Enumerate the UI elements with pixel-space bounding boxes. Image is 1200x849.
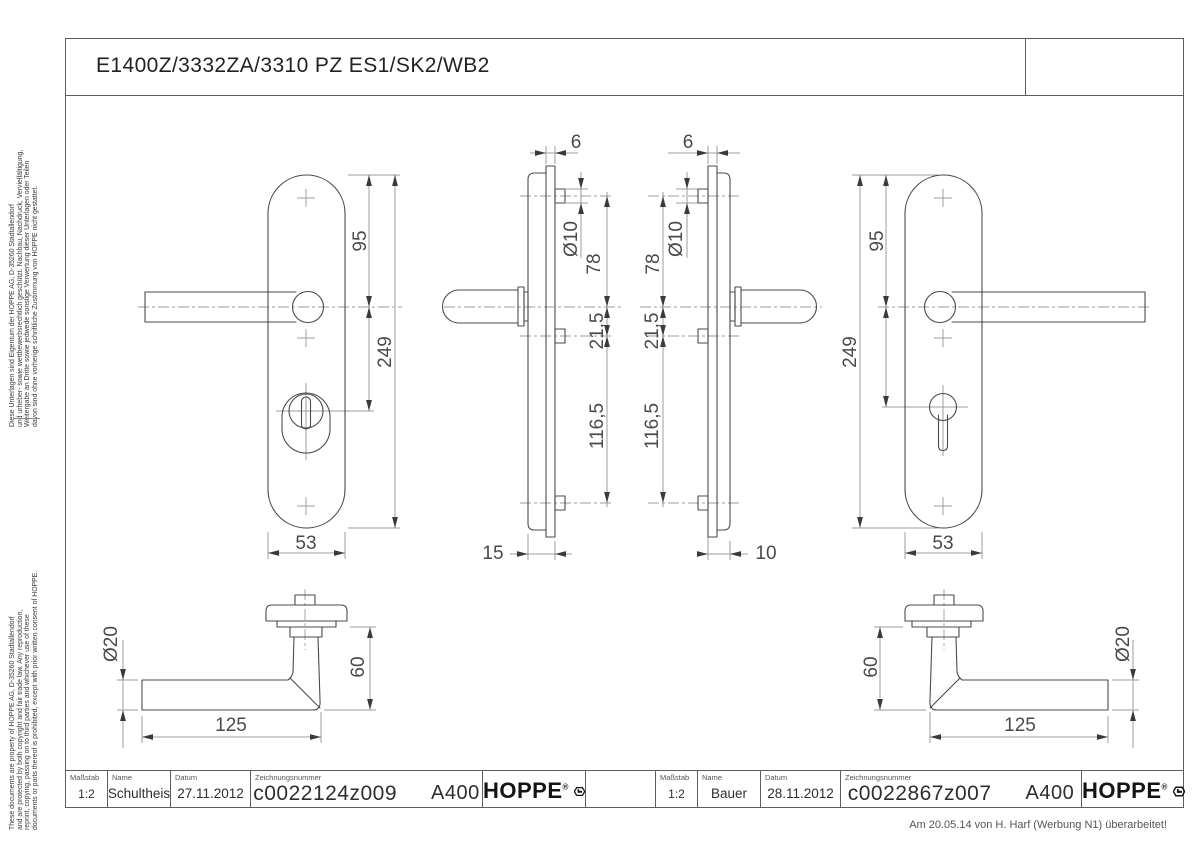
- dim-label: Ø20: [101, 626, 122, 662]
- dim-label: 21,5: [587, 313, 608, 350]
- dim-label: 95: [867, 230, 888, 251]
- dim-label: 249: [840, 336, 861, 368]
- dim-label: 78: [643, 253, 664, 274]
- dim-label: 95: [350, 230, 371, 251]
- dim-label: 6: [571, 132, 582, 153]
- dimension-arrows: [120, 150, 1136, 740]
- dim-label: 15: [482, 543, 503, 564]
- dimension-lines: [117, 146, 1139, 748]
- dim-label: 125: [215, 715, 247, 736]
- dim-label: 6: [683, 132, 694, 153]
- dim-label: 60: [861, 656, 882, 677]
- dimension-labels: 952495395249536Ø107821,5116,5156Ø107821,…: [101, 132, 1134, 736]
- dim-label: 53: [932, 533, 953, 554]
- dim-label: 116,5: [587, 403, 608, 449]
- dim-label: Ø20: [1113, 626, 1134, 662]
- dim-label: 78: [584, 253, 605, 274]
- dim-label: 125: [1004, 715, 1036, 736]
- dim-label: 249: [375, 336, 396, 368]
- dim-label: 116,5: [642, 403, 663, 449]
- dim-label: Ø10: [666, 221, 687, 257]
- dim-label: Ø10: [561, 221, 582, 257]
- dim-label: 10: [755, 543, 776, 564]
- revision-note: Am 20.05.14 von H. Harf (Werbung N1) übe…: [880, 819, 1167, 831]
- dim-label: 21,5: [642, 313, 663, 350]
- dim-label: 53: [295, 533, 316, 554]
- technical-drawing: 952495395249536Ø107821,5116,5156Ø107821,…: [0, 0, 1200, 849]
- dim-label: 60: [348, 656, 369, 677]
